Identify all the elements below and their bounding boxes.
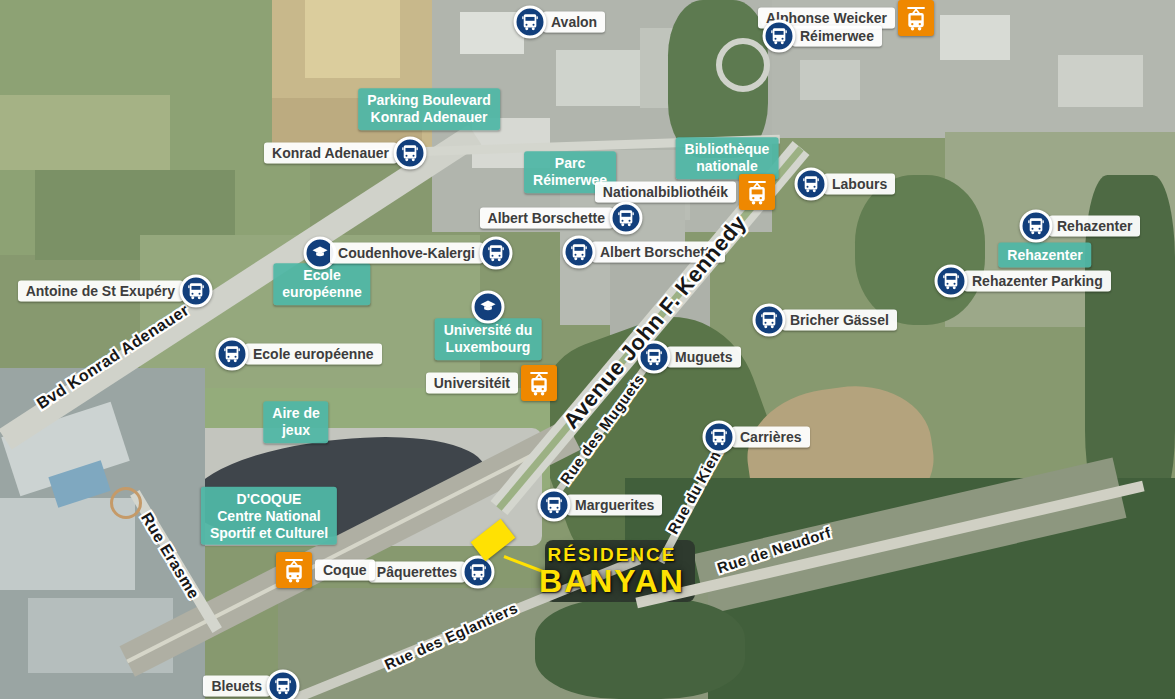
area-label-bibliotheque-nationale: Bibliothèquenationale (676, 137, 779, 179)
stop-label: Coudenhove-Kalergi (330, 243, 483, 264)
stop-label: Rehazenter (1049, 216, 1140, 237)
residence-name-line1: RÉSIDENCE (539, 545, 685, 565)
area-label-line: européenne (282, 284, 361, 301)
stop-label: Avalon (543, 12, 605, 33)
area-label-ecole-europeenne-area: Ecoleeuropéenne (273, 263, 370, 305)
residence-name-line2: BANYAN (539, 565, 685, 597)
kirchberg-area-map: Avenue John F. KennedyBvd Konrad Adenaue… (0, 0, 1175, 699)
stop-label: Carrières (732, 427, 810, 448)
stop-label: Marguerites (567, 495, 662, 516)
bus-stop-icon (610, 202, 643, 235)
area-label-line: Sportif et Culturel (210, 524, 328, 541)
area-label-line: Parc (533, 155, 607, 172)
area-label-dcoque: D'COQUECentre NationalSportif et Culture… (201, 487, 337, 545)
area-label-parking-boulevard-konrad-adenauer: Parking BoulevardKonrad Adenauer (358, 88, 500, 130)
area-label-line: Bibliothèque (685, 141, 770, 158)
bus-stop-icon (703, 421, 736, 454)
stop-label: Labours (824, 174, 895, 195)
area-label-rehazenter-area: Rehazenter (998, 243, 1091, 268)
stop-label: Coque (315, 560, 375, 581)
stop-label: Konrad Adenauer (264, 143, 397, 164)
bus-stop-icon (267, 670, 300, 699)
bus-stop-icon (216, 338, 249, 371)
bus-stop-icon (935, 265, 968, 298)
terrain-patch (0, 95, 170, 170)
stop-label: Muguets (667, 347, 741, 368)
area-label-line: Parking Boulevard (367, 92, 491, 109)
area-label-universite-du-luxembourg: Université duLuxembourg (435, 318, 542, 360)
terrain-patch (855, 175, 985, 325)
stop-label: Réimerwee (792, 26, 882, 47)
roundabout (110, 487, 142, 519)
area-label-line: Centre National (210, 508, 328, 525)
stop-label: Universitéit (426, 373, 518, 394)
area-label-line: Konrad Adenauer (367, 109, 491, 126)
stop-label: Bleuets (203, 676, 270, 697)
bus-stop-icon (795, 168, 828, 201)
tram-stop-icon (521, 365, 557, 401)
area-label-line: nationale (685, 158, 770, 175)
stop-label: Bricher Gässel (782, 310, 897, 331)
bus-stop-icon (1020, 210, 1053, 243)
residence-name: RÉSIDENCE BANYAN (539, 545, 685, 597)
area-label-line: Aire de (272, 405, 319, 422)
bus-stop-icon (538, 489, 571, 522)
bus-stop-icon (514, 6, 547, 39)
tram-stop-icon (898, 0, 934, 36)
stop-label: Nationalbibliothéik (595, 182, 736, 203)
area-label-line: Université du (444, 322, 533, 339)
tram-stop-icon (739, 174, 775, 210)
terrain-patch (305, 0, 400, 78)
bus-stop-icon (480, 237, 513, 270)
bus-stop-icon (180, 275, 213, 308)
bus-stop-icon (563, 236, 596, 269)
building-block (556, 50, 648, 106)
stop-label: Antoine de St Exupéry (18, 281, 183, 302)
building-block (1058, 55, 1143, 107)
area-label-line: Ecole (282, 267, 361, 284)
area-label-line: D'COQUE (210, 491, 328, 508)
stop-label: Pâquerettes (369, 562, 465, 583)
bus-stop-icon (753, 304, 786, 337)
stop-label: Rehazenter Parking (964, 271, 1111, 292)
area-label-line: Luxembourg (444, 339, 533, 356)
stop-label: Ecole européenne (245, 344, 382, 365)
bus-stop-icon (462, 556, 495, 589)
graduation-cap-icon (472, 291, 505, 324)
bus-stop-icon (763, 20, 796, 53)
area-label-line: jeux (272, 422, 319, 439)
area-label-aire-de-jeux: Aire dejeux (263, 401, 328, 443)
building-block (800, 60, 860, 100)
building-block (940, 15, 1010, 60)
stop-label: Albert Borschette (480, 208, 613, 229)
tram-stop-icon (276, 552, 312, 588)
roundabout (716, 38, 770, 92)
bus-stop-icon (394, 137, 427, 170)
area-label-line: Rehazenter (1007, 247, 1082, 264)
terrain-patch (535, 598, 745, 699)
